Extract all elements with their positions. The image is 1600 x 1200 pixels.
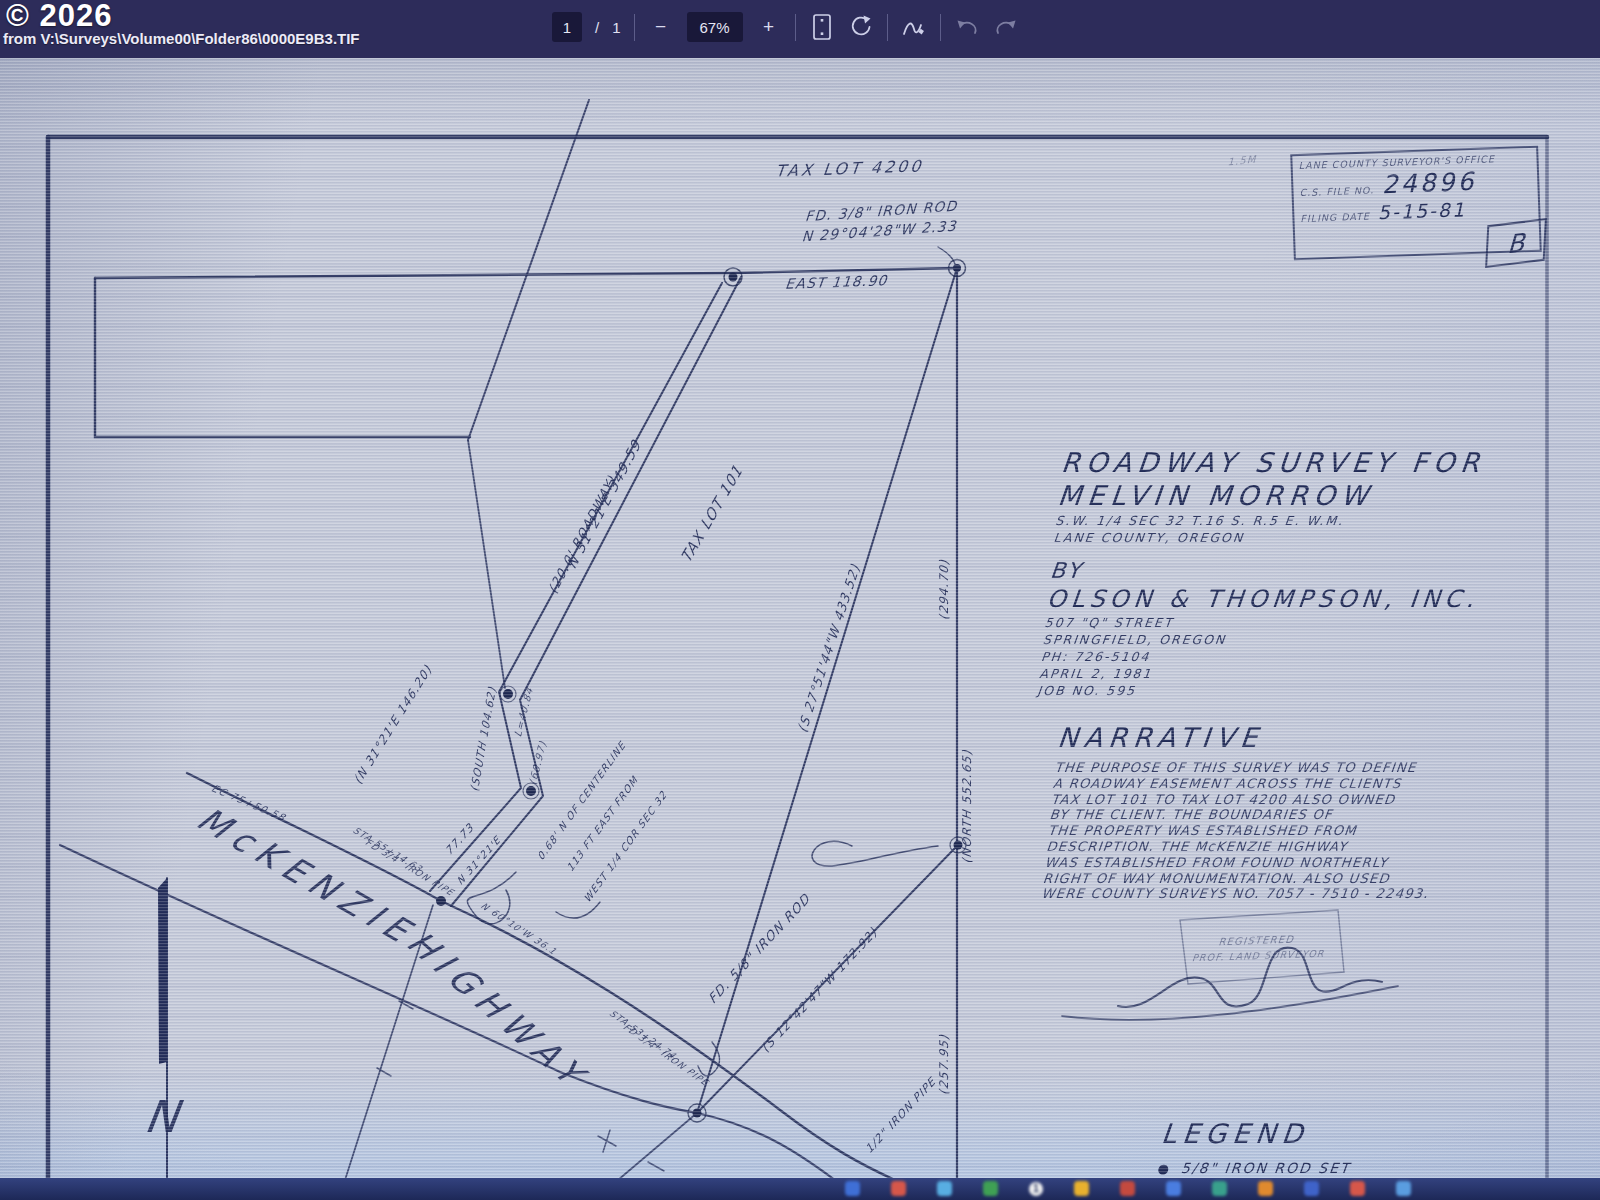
taskbar-app-icon[interactable] — [845, 1181, 860, 1196]
survey-label: REGISTERED — [1218, 934, 1295, 948]
narrative-line: THE PURPOSE OF THIS SURVEY WAS TO DEFINE — [1054, 760, 1443, 776]
taskbar-notification-badge[interactable]: 1 — [1029, 1182, 1043, 1196]
revision-letter-box: B — [1485, 218, 1547, 268]
taskbar[interactable]: 1 — [0, 1178, 1600, 1200]
survey-label: TAX LOT 4200 — [775, 156, 925, 180]
narrative-line: WAS ESTABLISHED FROM FOUND NORTHERLY — [1044, 855, 1433, 871]
taskbar-app-icon[interactable] — [1120, 1181, 1135, 1196]
rotate-icon — [848, 14, 874, 40]
survey-label: 0.68' N OF CENTERLINE — [535, 738, 627, 862]
survey-label: (N 31°21'E 146.20) — [351, 662, 434, 787]
monument-points — [436, 260, 966, 1123]
legal-description: S.W. 1/4 SEC 32 T.16 S. R.5 E. W.M. — [1055, 512, 1489, 529]
survey-ink-layer: TAX LOT 4200FD. 3/8" IRON RODN 29°04'28"… — [0, 0, 1600, 1200]
survey-title-line: ROADWAY SURVEY FOR — [1060, 446, 1495, 479]
file-source-path: from V:\Surveys\Volume00\Folder86\0000E9… — [3, 30, 360, 47]
survey-label: FD. 3/8" IRON ROD — [805, 198, 958, 225]
survey-label: (SOUTH 104.62) — [468, 685, 499, 793]
toolbar-separator — [795, 14, 796, 41]
survey-label: 113 FT EAST FROM — [565, 773, 640, 873]
taskbar-icons: 1 — [845, 1181, 1411, 1196]
survey-label: EC 75+50.58 — [209, 783, 288, 824]
survey-label: FD 3/4" IRON PIPE — [621, 1022, 711, 1088]
survey-label: WEST 1/4 COR SEC 32 — [582, 788, 669, 904]
survey-label: 1.5M — [1227, 153, 1257, 167]
survey-label: N 60°10'W 36.1 — [479, 901, 559, 956]
toolbar-separator — [940, 14, 941, 41]
fit-to-page-button[interactable] — [809, 14, 835, 40]
taskbar-app-icon[interactable] — [1258, 1181, 1273, 1196]
taskbar-app-icon[interactable] — [983, 1181, 998, 1196]
county-line: LANE COUNTY, OREGON — [1053, 529, 1487, 546]
survey-label: N 31°21'E 349.59 — [564, 436, 644, 571]
survey-label: STA 55+14.63 — [351, 826, 425, 874]
zoom-level-display[interactable]: 67% — [687, 12, 743, 42]
survey-label: STA 53+24.74 — [607, 1009, 678, 1061]
taskbar-app-icon[interactable] — [1074, 1181, 1089, 1196]
company-phone: PH: 726-5104 — [1040, 648, 1474, 665]
survey-date: APRIL 2, 1981 — [1038, 665, 1472, 682]
draw-button[interactable] — [901, 14, 927, 40]
toolbar-separator — [634, 14, 635, 41]
company-address: 507 "Q" STREET — [1044, 614, 1478, 631]
company-name: OLSON & THOMPSON, INC. — [1046, 584, 1481, 614]
narrative-line: BY THE CLIENT. THE BOUNDARIES OF — [1049, 807, 1438, 823]
redo-icon — [993, 15, 1019, 39]
narrative-line: TAX LOT 101 TO TAX LOT 4200 ALSO OWNED — [1050, 792, 1439, 808]
narrative-heading: NARRATIVE — [1056, 722, 1447, 754]
zoom-in-button[interactable]: + — [756, 14, 782, 40]
survey-label: (NORTH 552.65) — [960, 748, 974, 864]
screen: © 2026 from V:\Surveys\Volume00\Folder86… — [0, 0, 1600, 1200]
taskbar-app-icon[interactable] — [1212, 1181, 1227, 1196]
page-divider: / — [595, 19, 599, 36]
stamp-file-label: C.S. FILE NO. — [1299, 184, 1374, 198]
fit-to-page-icon — [810, 13, 834, 41]
stamp-file-number: 24896 — [1381, 167, 1476, 199]
page-number-input[interactable]: 1 — [552, 12, 582, 42]
stamp-date-value: 5-15-81 — [1377, 198, 1466, 223]
survey-label: FD 3/4" IRON PIPE — [363, 838, 456, 898]
survey-label: (S 12°42'47"W 172.92) — [759, 924, 880, 1055]
viewer-controls: 1 / 1 − 67% + — [552, 12, 1019, 42]
toolbar-separator — [887, 14, 888, 41]
taskbar-app-icon[interactable] — [1166, 1181, 1181, 1196]
zoom-out-button[interactable]: − — [648, 14, 674, 40]
copyright-watermark: © 2026 — [6, 0, 112, 34]
undo-icon — [954, 15, 980, 39]
narrative-text: THE PURPOSE OF THIS SURVEY WAS TO DEFINE… — [1041, 760, 1443, 902]
company-address: SPRINGFIELD, OREGON — [1042, 631, 1476, 648]
survey-label: L=40.84 — [512, 685, 535, 739]
title-block: ROADWAY SURVEY FOR MELVIN MORROW S.W. 1/… — [1037, 446, 1495, 699]
taskbar-app-icon[interactable] — [937, 1181, 952, 1196]
stamp-date-label: FILING DATE — [1300, 211, 1370, 224]
narrative-line: A ROADWAY EASEMENT ACROSS THE CLIENTS — [1052, 776, 1441, 792]
survey-label: HIGHWAY — [399, 924, 598, 1097]
survey-label: (S 27°51'44"W 433.52) — [795, 561, 863, 735]
revision-letter: B — [1507, 227, 1526, 258]
job-number: JOB NO. 595 — [1037, 682, 1471, 699]
survey-title-line: MELVIN MORROW — [1056, 479, 1491, 512]
legend-item: ● 5/8" IRON ROD SET — [1157, 1160, 1352, 1176]
survey-label: (257.95) — [937, 1033, 951, 1096]
survey-label: N 29°04'28"W 2.33 — [801, 218, 957, 245]
by-line: BY — [1049, 558, 1484, 584]
narrative-line: WERE COUNTY SURVEYS NO. 7057 - 7510 - 22… — [1041, 886, 1430, 902]
rotate-button[interactable] — [848, 14, 874, 40]
legend-heading: LEGEND — [1160, 1118, 1356, 1150]
viewer-toolbar: © 2026 from V:\Surveys\Volume00\Folder86… — [0, 0, 1600, 58]
page-total: 1 — [612, 19, 620, 36]
legend-item-label: 5/8" IRON ROD SET — [1180, 1160, 1351, 1176]
survey-label: McKENZIE — [189, 800, 425, 954]
survey-label: 1/2" IRON PIPE — [863, 1074, 938, 1156]
survey-label: N 31°21'E — [455, 833, 503, 887]
taskbar-app-icon[interactable] — [1396, 1181, 1411, 1196]
survey-label: (294.70) — [937, 558, 951, 621]
survey-label: (20.0' ROADWAY) — [546, 472, 619, 596]
taskbar-app-icon[interactable] — [1350, 1181, 1365, 1196]
survey-label: TAX LOT 101 — [678, 461, 747, 566]
survey-label: EAST 118.90 — [785, 272, 889, 292]
iron-rod-symbol: ● — [1157, 1161, 1172, 1176]
legend-block: LEGEND ● 5/8" IRON ROD SET — [1157, 1118, 1356, 1176]
survey-label: FD. 5/8" IRON ROD — [706, 890, 814, 1007]
taskbar-app-icon[interactable] — [1304, 1181, 1319, 1196]
survey-label: N — [142, 1091, 186, 1142]
taskbar-app-icon[interactable] — [891, 1181, 906, 1196]
narrative-block: NARRATIVE THE PURPOSE OF THIS SURVEY WAS… — [1041, 722, 1447, 902]
survey-label: PROF. LAND SURVEYOR — [1191, 948, 1325, 964]
narrative-line: THE PROPERTY WAS ESTABLISHED FROM — [1047, 823, 1436, 839]
undo-button[interactable] — [954, 14, 980, 40]
narrative-line: RIGHT OF WAY MONUMENTATION. ALSO USED — [1042, 871, 1431, 887]
survey-label: 77.73 — [443, 820, 476, 858]
draw-icon — [901, 14, 927, 40]
redo-button[interactable] — [993, 14, 1019, 40]
narrative-line: DESCRIPTION. THE McKENZIE HIGHWAY — [1046, 839, 1435, 855]
survey-label: (60.97) — [527, 739, 548, 787]
